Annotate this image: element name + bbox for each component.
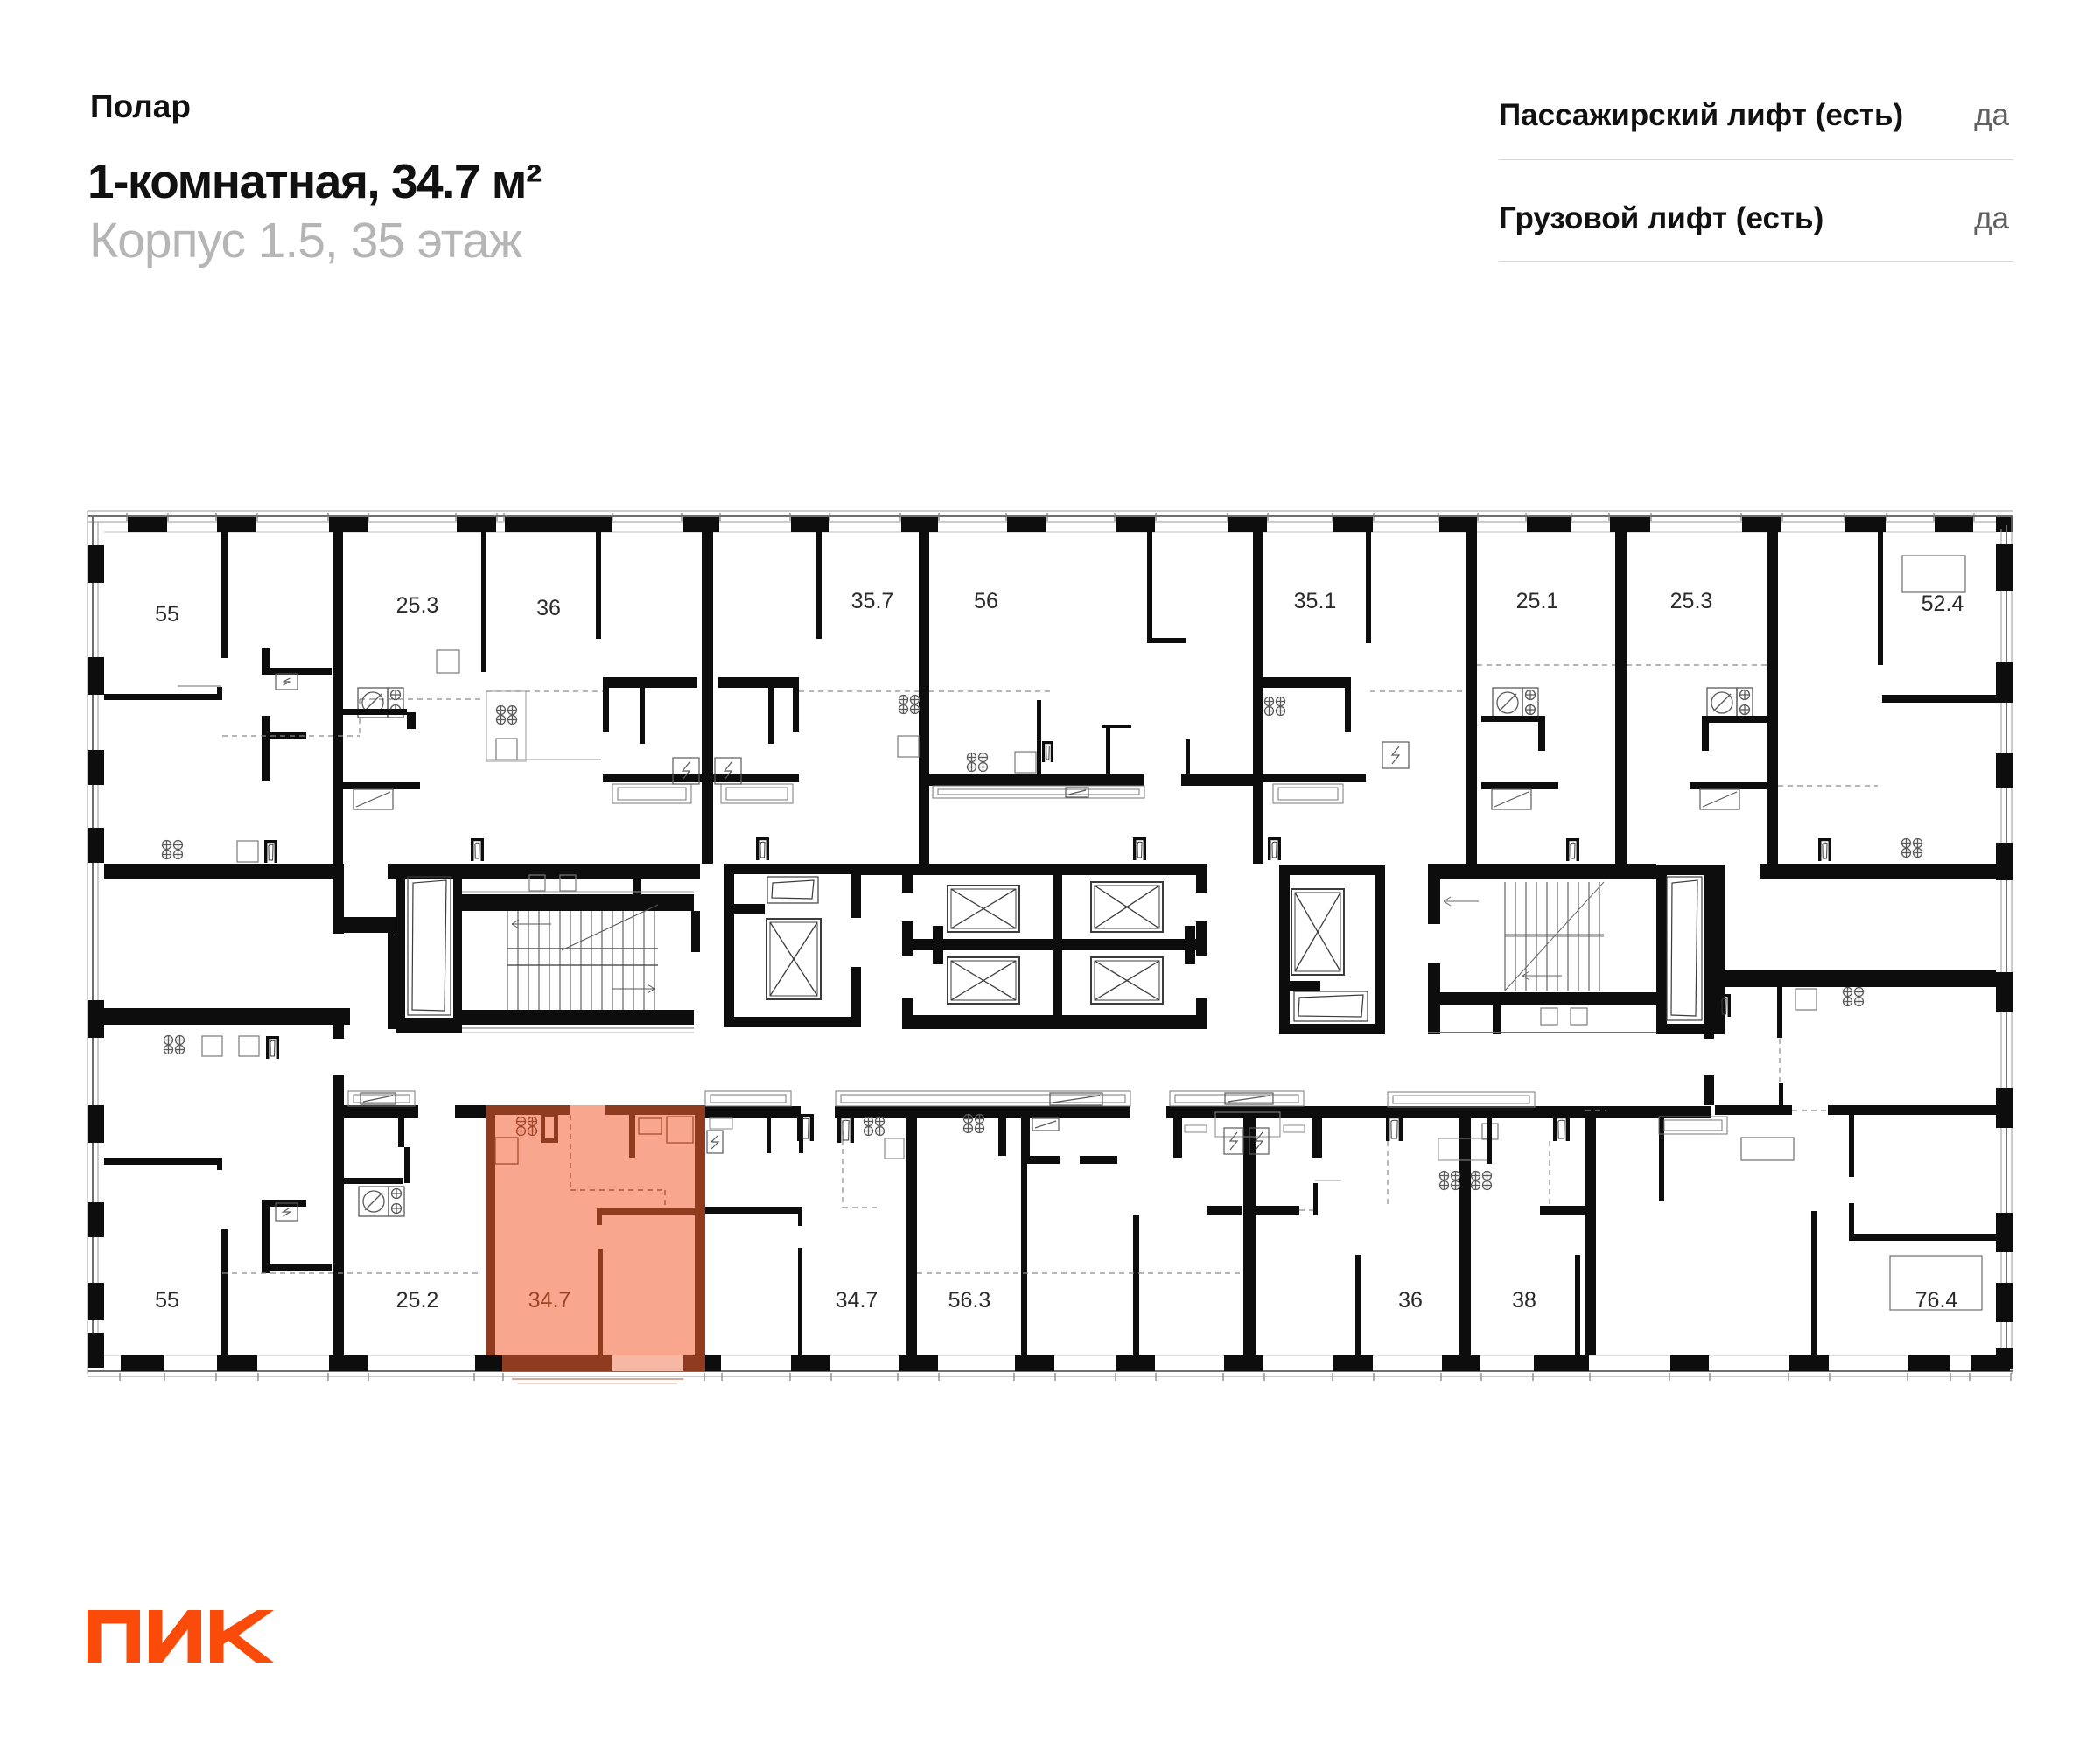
svg-text:25.3: 25.3 [396, 593, 439, 618]
svg-text:25.2: 25.2 [396, 1288, 439, 1312]
svg-text:56.3: 56.3 [948, 1288, 991, 1312]
svg-text:36: 36 [536, 596, 561, 620]
svg-text:35.1: 35.1 [1294, 589, 1337, 613]
svg-text:56: 56 [974, 589, 998, 613]
svg-text:25.1: 25.1 [1516, 589, 1559, 613]
svg-text:35.7: 35.7 [851, 589, 894, 613]
svg-text:76.4: 76.4 [1915, 1288, 1958, 1312]
svg-text:55: 55 [155, 1288, 179, 1312]
svg-text:34.7: 34.7 [528, 1288, 571, 1312]
svg-text:34.7: 34.7 [836, 1288, 878, 1312]
svg-text:52.4: 52.4 [1921, 591, 1964, 616]
svg-text:38: 38 [1512, 1288, 1536, 1312]
svg-text:36: 36 [1398, 1288, 1423, 1312]
svg-text:55: 55 [155, 602, 179, 626]
svg-text:25.3: 25.3 [1670, 589, 1713, 613]
